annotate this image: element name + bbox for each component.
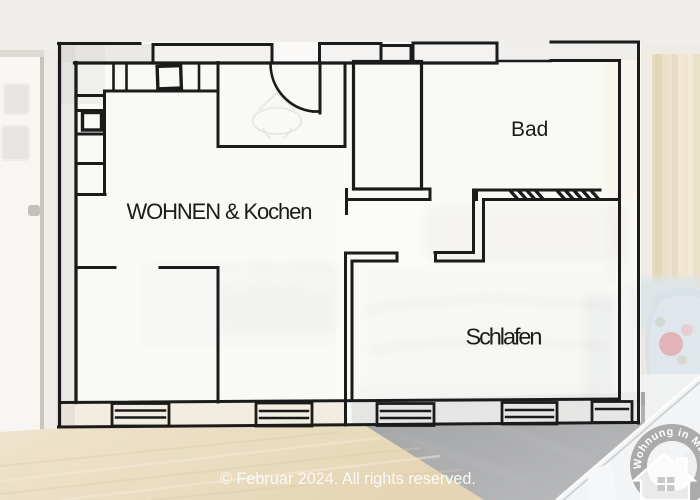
svg-text:WOHNEN & Kochen: WOHNEN & Kochen — [127, 199, 313, 224]
svg-text:© Februar 2024. All rights res: © Februar 2024. All rights reserved. — [220, 470, 476, 488]
svg-text:Schlafen: Schlafen — [466, 324, 543, 350]
svg-text:Bad: Bad — [511, 118, 548, 141]
